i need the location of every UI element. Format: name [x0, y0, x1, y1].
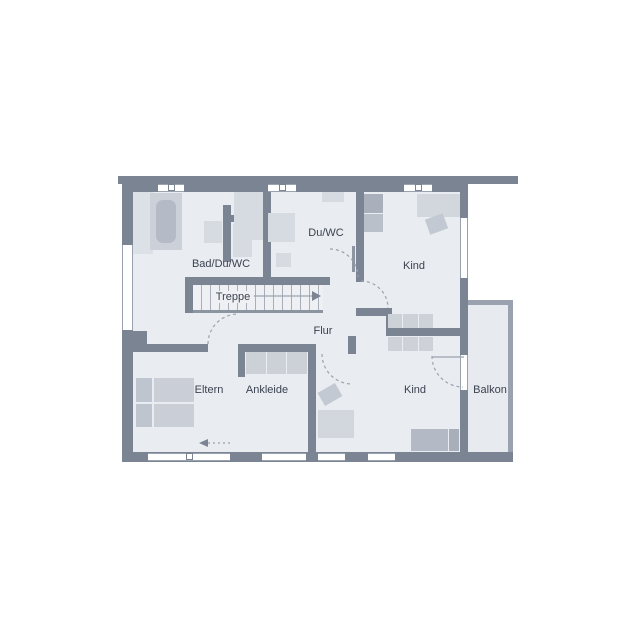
wall [122, 330, 133, 462]
window [368, 453, 395, 461]
wall [348, 336, 356, 354]
shower-icon [268, 213, 295, 242]
wall [223, 205, 231, 262]
wall [133, 344, 208, 352]
balcony-floor [468, 300, 513, 457]
wall [460, 184, 468, 218]
bed-icon [136, 378, 194, 427]
wall [238, 344, 245, 377]
wall [308, 344, 316, 452]
window-handle-icon [186, 453, 193, 460]
room-label-kind-top: Kind [403, 260, 425, 272]
wardrobe-icon [388, 337, 433, 351]
room-label-treppe: Treppe [212, 291, 254, 303]
wall [386, 328, 460, 336]
wardrobe-icon [388, 314, 433, 328]
wall [460, 390, 468, 462]
room-label-flur: Flur [314, 325, 333, 337]
room-label-kind-bottom: Kind [404, 384, 426, 396]
window-handle-icon [168, 184, 175, 191]
sink-icon [204, 221, 222, 243]
wall [185, 277, 330, 285]
wall [356, 192, 364, 282]
room-label-eltern: Eltern [195, 384, 224, 396]
window-handle-icon [279, 184, 286, 191]
wall [185, 285, 193, 313]
window-handle-icon [415, 184, 422, 191]
wall [356, 308, 392, 316]
room-label-ankleide: Ankleide [246, 384, 288, 396]
wall [133, 331, 147, 344]
wardrobe-icon [364, 194, 383, 232]
wall [238, 344, 316, 352]
bed-icon [411, 429, 448, 451]
window [262, 453, 306, 461]
bathtub-inner [156, 200, 176, 243]
desk-icon [318, 410, 354, 438]
wall [352, 246, 355, 272]
room-label-bad: Bad/Du/WC [192, 258, 250, 270]
floor-plan: Bad/Du/WC Du/WC Kind Treppe Flur Eltern … [0, 0, 636, 636]
wall [460, 278, 468, 355]
sink-icon [233, 224, 252, 257]
window [122, 245, 133, 330]
window [318, 453, 345, 461]
wall [122, 184, 133, 245]
room-label-duwc: Du/WC [308, 227, 343, 239]
sink-icon [322, 192, 344, 202]
balcony-door [460, 355, 468, 390]
bed-pillow [449, 429, 459, 451]
window [460, 218, 468, 278]
roof-edge [118, 176, 518, 184]
room-label-balkon: Balkon [473, 384, 507, 396]
toilet-icon [276, 253, 291, 267]
wall [193, 310, 323, 313]
wardrobe-icon [246, 352, 307, 374]
